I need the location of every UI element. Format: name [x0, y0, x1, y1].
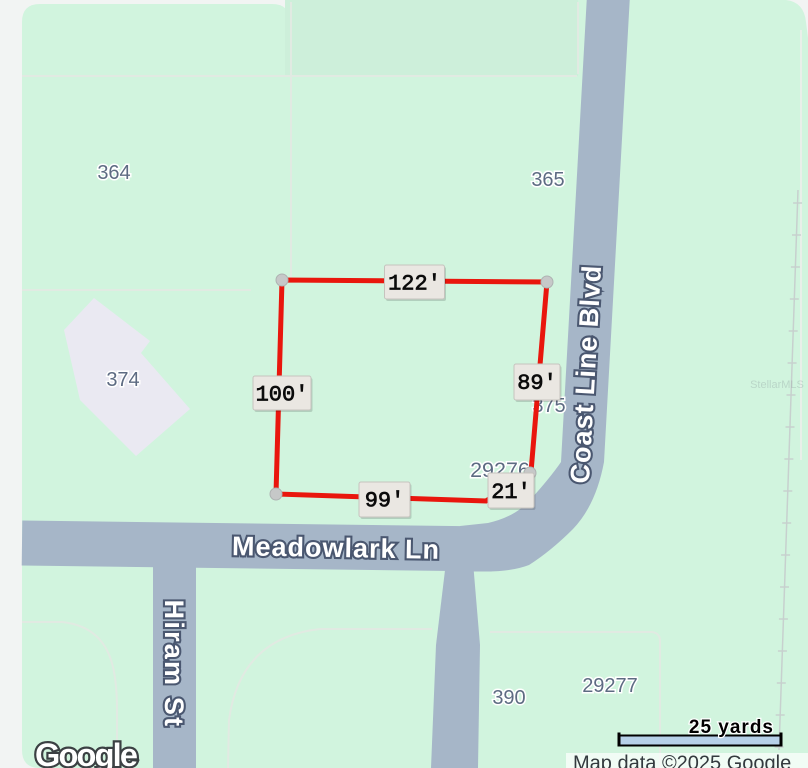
svg-text:390: 390: [492, 687, 525, 709]
svg-text:StellarMLS: StellarMLS: [750, 379, 804, 391]
svg-text:25 yards: 25 yards: [689, 717, 774, 738]
svg-text:Meadowlark Ln: Meadowlark Ln: [232, 531, 441, 565]
svg-text:Google: Google: [35, 737, 137, 768]
svg-text:29277: 29277: [582, 675, 638, 697]
svg-text:Hiram St: Hiram St: [159, 600, 189, 729]
svg-text:122': 122': [388, 272, 441, 297]
svg-text:100': 100': [256, 383, 309, 408]
svg-text:Map data ©2025 Google: Map data ©2025 Google: [573, 753, 791, 768]
svg-text:89': 89': [517, 371, 557, 396]
svg-text:365: 365: [531, 169, 564, 191]
svg-text:374: 374: [106, 369, 139, 391]
svg-text:364: 364: [97, 162, 130, 184]
svg-text:21': 21': [491, 480, 531, 505]
svg-text:99': 99': [365, 489, 405, 514]
